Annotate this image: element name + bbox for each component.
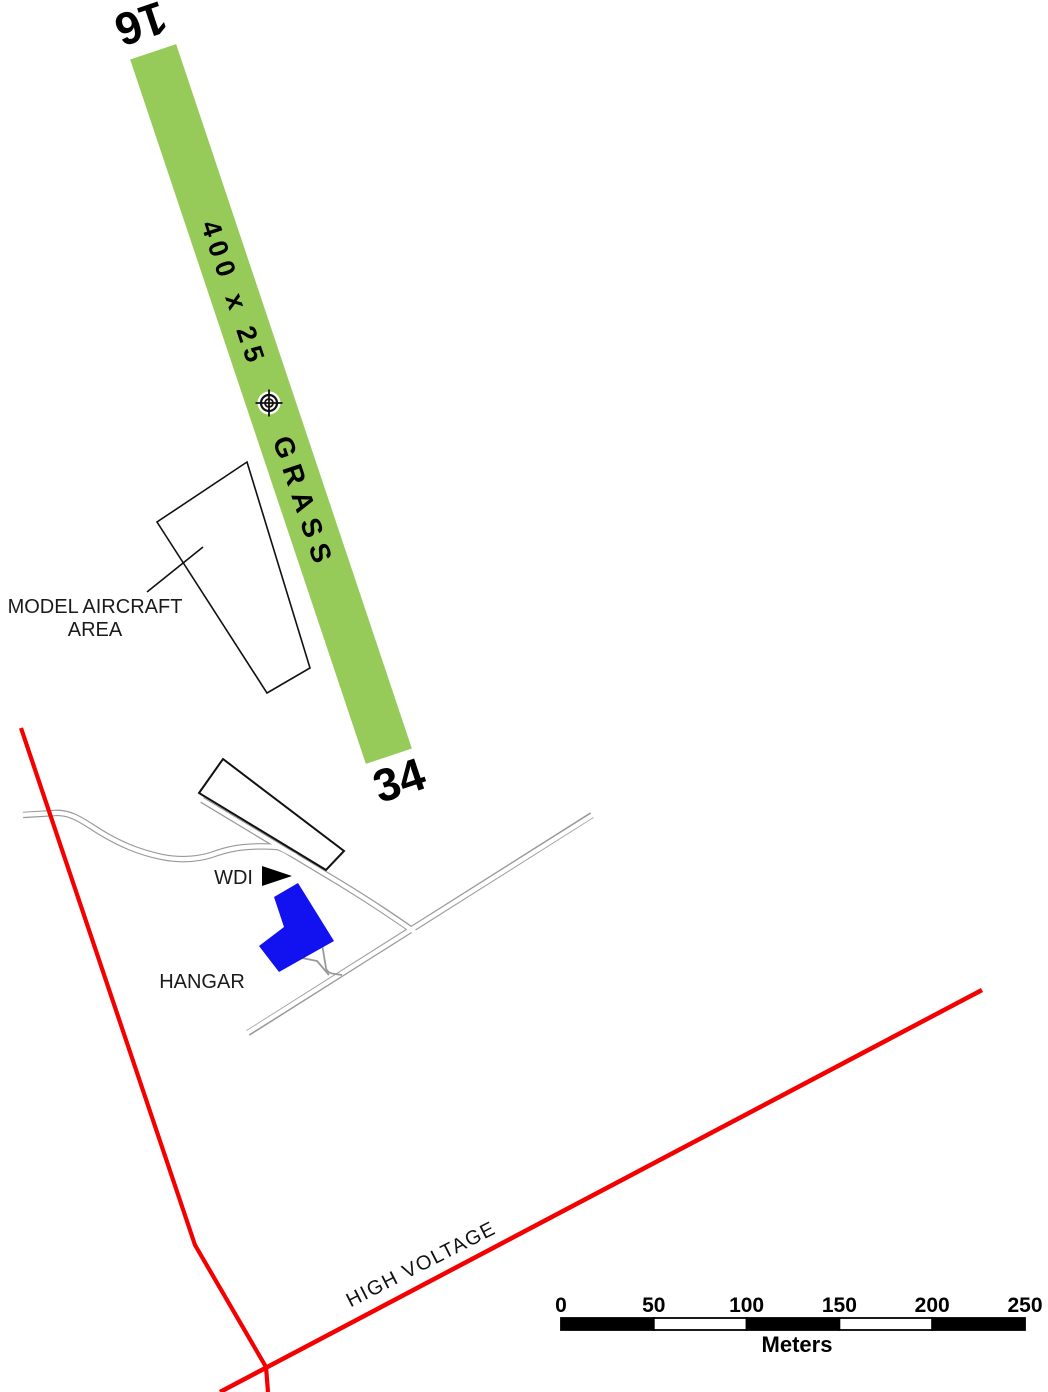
high-voltage-label: HIGH VOLTAGE xyxy=(343,1217,500,1312)
scale-bar: 0 50 100 150 200 250 Meters xyxy=(555,1294,1042,1357)
model-aircraft-label-line1: MODEL AIRCRAFT xyxy=(8,596,183,618)
scale-unit-label: Meters xyxy=(762,1332,833,1357)
scale-tick-250: 250 xyxy=(1007,1294,1042,1317)
scale-segment-0-50 xyxy=(561,1318,654,1330)
wdi-triangle-icon xyxy=(262,866,292,886)
scale-segment-200-250 xyxy=(932,1318,1025,1330)
runway-designator-16: 16 xyxy=(108,0,173,57)
hangar: HANGAR xyxy=(159,883,334,993)
wind-direction-indicator: WDI xyxy=(214,866,292,889)
wdi-label: WDI xyxy=(214,867,253,889)
scale-tick-0: 0 xyxy=(555,1294,567,1317)
scale-segment-50-100 xyxy=(654,1318,747,1330)
scale-tick-100: 100 xyxy=(729,1294,764,1317)
scale-tick-50: 50 xyxy=(642,1294,665,1317)
model-aircraft-label-line2: AREA xyxy=(68,619,123,641)
hangar-label: HANGAR xyxy=(159,971,245,993)
scale-segment-150-200 xyxy=(839,1318,932,1330)
scale-tick-150: 150 xyxy=(822,1294,857,1317)
scale-segment-100-150 xyxy=(747,1318,840,1330)
model-aircraft-leader-line xyxy=(147,547,203,592)
model-aircraft-area: MODEL AIRCRAFT AREA xyxy=(8,462,310,693)
high-voltage-lines: HIGH VOLTAGE xyxy=(21,728,982,1392)
high-voltage-line-west xyxy=(21,728,268,1392)
airfield-map: 400 x 25 GRASS 16 34 MODEL AIRCRAFT AREA… xyxy=(0,0,1048,1392)
high-voltage-line-southeast xyxy=(220,990,982,1392)
scale-tick-200: 200 xyxy=(915,1294,950,1317)
hangar-building xyxy=(259,883,334,972)
